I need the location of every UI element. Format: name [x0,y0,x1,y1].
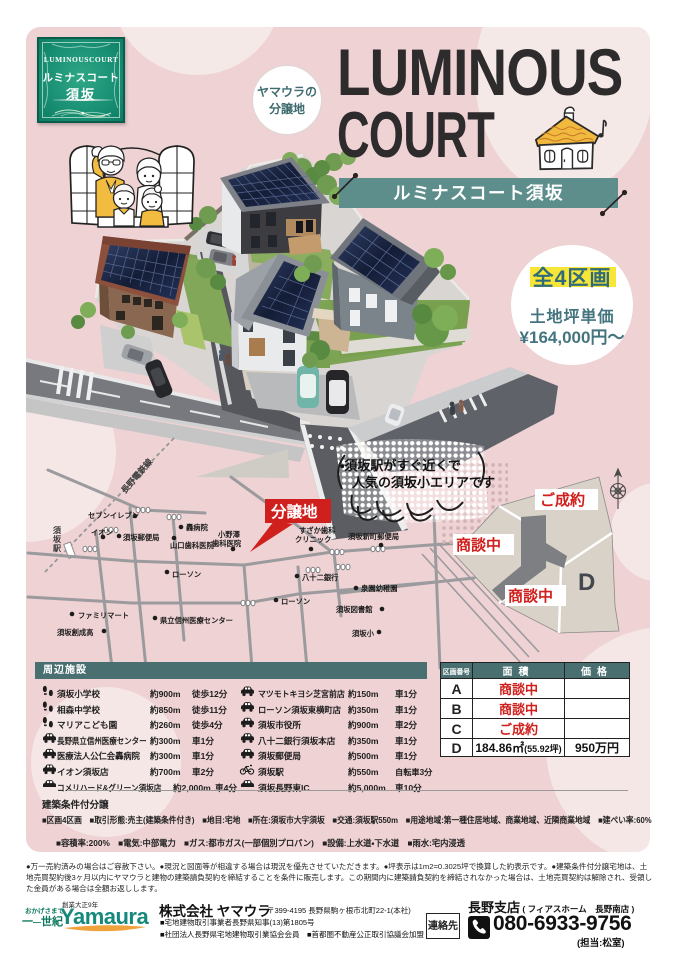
svg-text:セブンイレブン: セブンイレブン [88,511,139,520]
svg-text:須坂郵便局: 須坂郵便局 [123,533,159,542]
svg-text:分譲地: 分譲地 [270,502,318,521]
svg-text:D: D [578,569,595,596]
svg-text:泉園幼稚園: 泉園幼稚園 [360,584,397,593]
svg-text:すざか歯科: すざか歯科 [299,526,336,535]
svg-text:商談中: 商談中 [508,587,553,605]
svg-text:イオン: イオン [91,528,113,537]
svg-text:ローソン: ローソン [281,597,310,606]
svg-text:ファミリマート: ファミリマート [78,611,129,620]
svg-text:商談中: 商談中 [456,536,501,554]
svg-text:ローソン: ローソン [172,570,201,579]
svg-text:須: 須 [52,525,62,535]
svg-text:小野澤: 小野澤 [217,530,241,539]
svg-text:県立信州医療センター: 県立信州医療センター [160,616,233,625]
svg-text:クリニック: クリニック [295,535,331,544]
svg-text:歯科医院: 歯科医院 [212,539,242,548]
svg-text:山口歯科医院: 山口歯科医院 [170,541,214,550]
svg-text:長野電鉄線: 長野電鉄線 [119,456,155,495]
svg-text:轟病院: 轟病院 [186,523,209,532]
svg-text:須坂図書館: 須坂図書館 [336,605,373,614]
svg-text:須坂新町郵便局: 須坂新町郵便局 [348,532,399,541]
svg-text:人気の須坂小エリアです: 人気の須坂小エリアです [351,475,495,490]
svg-text:・須坂駅がすぐ近くで: ・須坂駅がすぐ近くで [340,458,461,473]
svg-text:ご成約: ご成約 [540,491,585,509]
svg-text:駅: 駅 [53,544,62,553]
svg-text:須坂小: 須坂小 [352,629,375,638]
svg-text:須坂創成高: 須坂創成高 [57,628,93,637]
svg-text:坂: 坂 [53,534,62,544]
svg-text:八十二銀行: 八十二銀行 [302,573,339,582]
